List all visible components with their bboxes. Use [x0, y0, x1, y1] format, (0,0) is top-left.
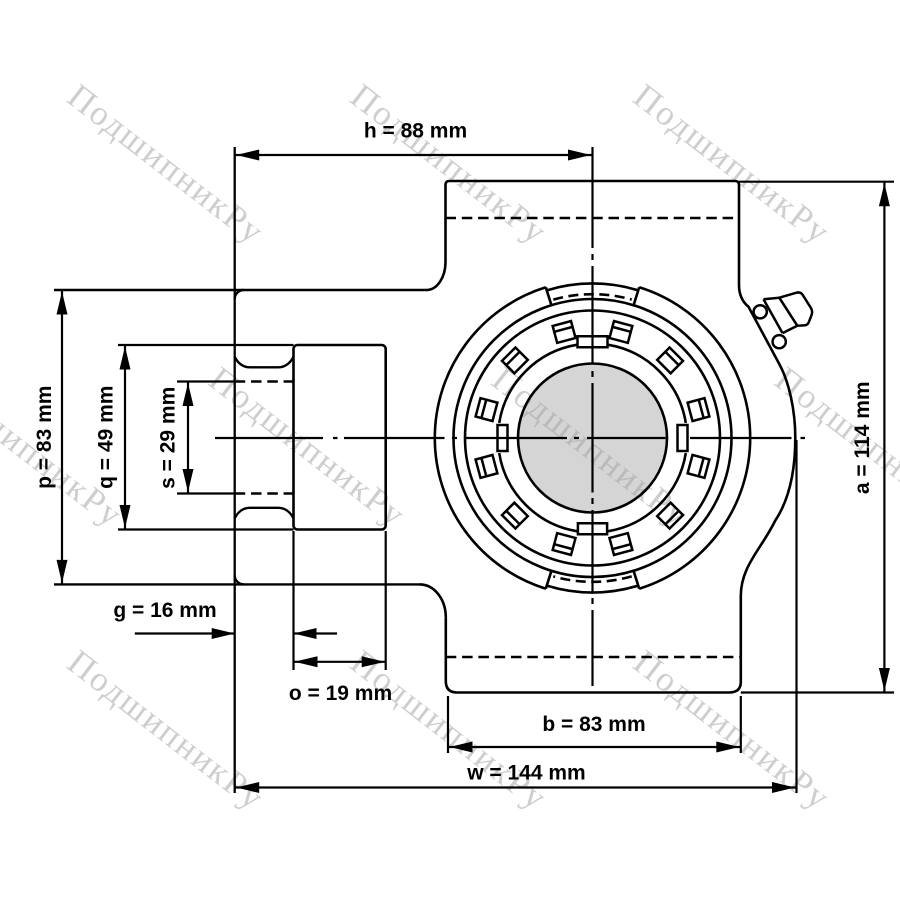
svg-text:p = 83 mm: p = 83 mm	[33, 386, 56, 489]
svg-text:q = 49 mm: q = 49 mm	[95, 386, 118, 489]
svg-text:s = 29 mm: s = 29 mm	[157, 387, 180, 489]
svg-text:h = 88 mm: h = 88 mm	[364, 120, 467, 143]
svg-text:w = 144 mm: w = 144 mm	[466, 762, 585, 785]
svg-text:g = 16 mm: g = 16 mm	[113, 599, 216, 622]
svg-text:a = 114 mm: a = 114 mm	[851, 381, 874, 494]
svg-text:o = 19 mm: o = 19 mm	[289, 682, 392, 705]
svg-text:b = 83 mm: b = 83 mm	[542, 713, 645, 736]
